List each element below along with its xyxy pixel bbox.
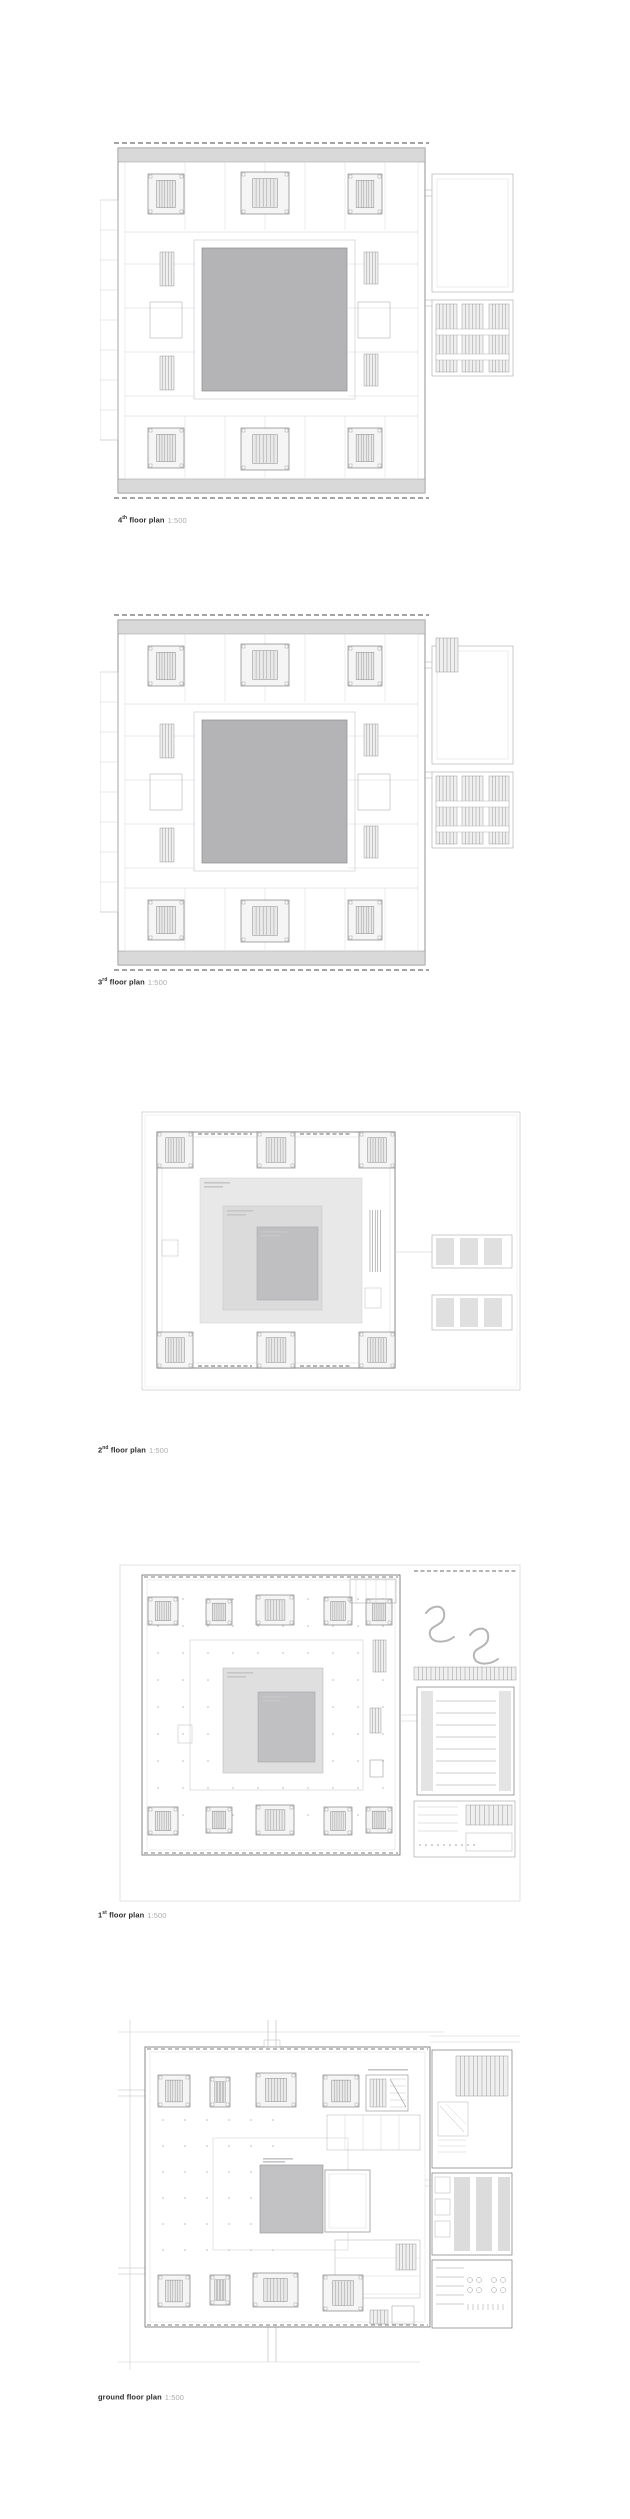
floorplan-4th-floor-drawing bbox=[100, 140, 520, 520]
caption-scale: 1:500 bbox=[165, 2393, 184, 2402]
caption-2nd-floor: 2nd floor plan1:500 bbox=[98, 1443, 168, 1456]
caption-scale: 1:500 bbox=[149, 1446, 168, 1455]
caption-3rd-floor: 3rd floor plan1:500 bbox=[98, 975, 167, 988]
caption-scale: 1:500 bbox=[148, 978, 167, 987]
floorplan-ground-floor bbox=[118, 2020, 538, 2400]
caption-scale: 1:500 bbox=[147, 1911, 166, 1920]
floorplan-3rd-floor bbox=[100, 612, 520, 992]
caption-text: floor plan bbox=[127, 516, 164, 525]
floorplan-3rd-floor-drawing bbox=[100, 612, 520, 992]
drawing-sheet: 4th floor plan1:500 3rd floor plan1:500 … bbox=[0, 0, 630, 2519]
caption-4th-floor: 4th floor plan1:500 bbox=[118, 513, 187, 526]
floorplan-1st-floor-drawing bbox=[118, 1555, 538, 1935]
caption-text: floor plan bbox=[107, 1911, 144, 1920]
floorplan-4th-floor bbox=[100, 140, 520, 520]
caption-1st-floor: 1st floor plan1:500 bbox=[98, 1908, 167, 1921]
caption-text: floor plan bbox=[107, 978, 144, 987]
floorplan-1st-floor bbox=[118, 1555, 538, 1935]
floorplan-2nd-floor bbox=[118, 1090, 538, 1470]
caption-number: ground bbox=[98, 2393, 124, 2402]
caption-ground-floor: ground floor plan1:500 bbox=[98, 2390, 184, 2403]
caption-text: floor plan bbox=[124, 2393, 161, 2402]
floorplan-2nd-floor-drawing bbox=[118, 1090, 538, 1470]
floorplan-ground-floor-drawing bbox=[118, 2020, 538, 2400]
caption-scale: 1:500 bbox=[168, 516, 187, 525]
caption-text: floor plan bbox=[109, 1446, 146, 1455]
